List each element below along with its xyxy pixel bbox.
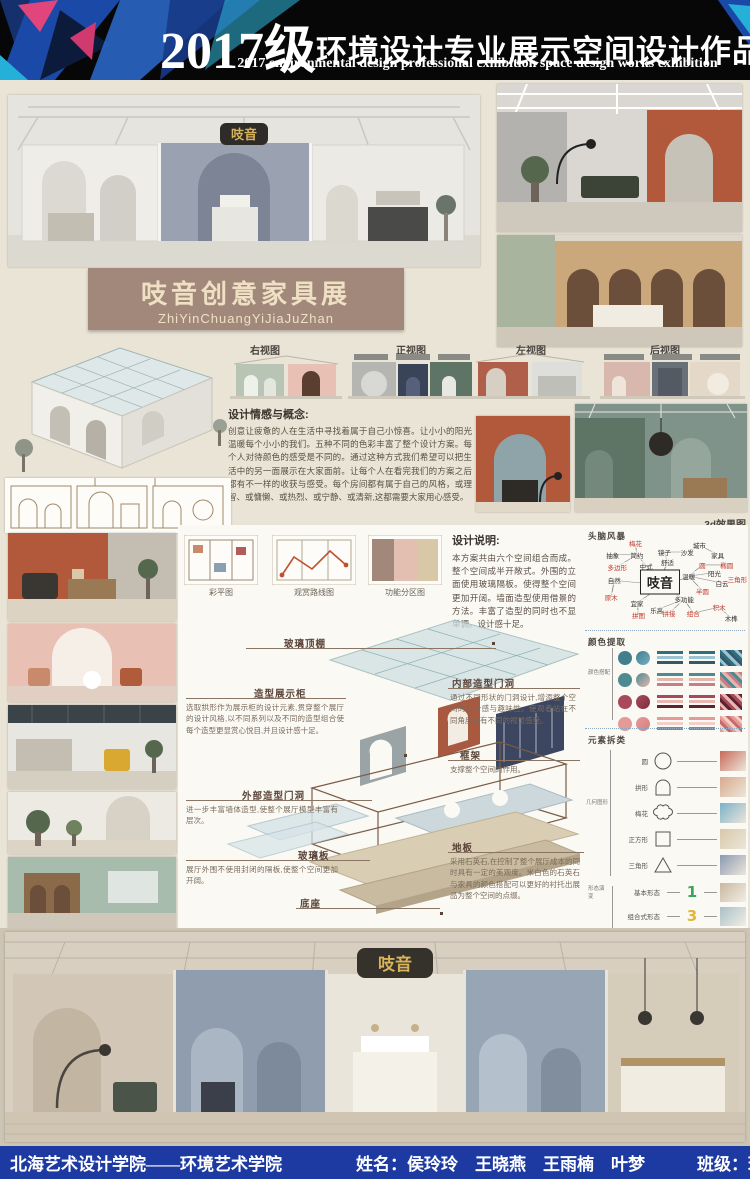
mindmap-node: 拼接 (662, 608, 675, 618)
form-connector (704, 916, 717, 917)
elements-divider (585, 728, 745, 729)
palette-rows (618, 648, 746, 736)
exhibition-banner: 吱音创意家具展 ZhiYinChuangYiJiaJuZhan (88, 268, 404, 330)
main-elevation-render: 吱音 (8, 95, 480, 267)
mood-render-4 (8, 792, 176, 854)
color-stripe-set (657, 651, 683, 664)
element-shape-row: 正方形 (614, 826, 746, 852)
footer-school: 北海艺术设计学院——环境艺术学院 (10, 1150, 282, 1175)
page-subtitle-en: 2017 environmental design professional e… (205, 56, 750, 72)
mindmap-node: 城市 (693, 540, 706, 550)
interior-render-3b (575, 404, 747, 512)
palette-heading: 颜色提取 (588, 636, 626, 648)
element-connector (677, 761, 717, 762)
color-swatch-circle (618, 695, 632, 709)
footer-names: 侯玲玲 王晓燕 王雨楠 叶梦 (407, 1150, 645, 1175)
forms-label: 形态演变 (588, 884, 608, 900)
footer-bar: 北海艺术设计学院——环境艺术学院 姓名： 侯玲玲 王晓燕 王雨楠 叶梦 班级： … (0, 1146, 750, 1179)
element-photo-thumb (720, 777, 746, 797)
leader-frame (448, 760, 580, 761)
mindmap-node: 拼图 (632, 610, 645, 620)
square-shape-icon (652, 829, 674, 849)
mindmap-node: 积木 (713, 602, 726, 612)
color-swatch-circle (636, 695, 650, 709)
mindmap-node: 舒适 (661, 557, 674, 567)
svg-text:吱音: 吱音 (378, 954, 412, 974)
mindmap-node: 镜子 (658, 547, 671, 557)
mindmap-node: 抽象 (606, 550, 619, 560)
palette-bracket (612, 648, 617, 720)
footer-names-label: 姓名： (356, 1150, 407, 1175)
footer-class-label: 班级： (697, 1150, 748, 1175)
leader-glass-roof (246, 648, 496, 649)
palette-connector-label: 颜色搭配 (588, 668, 610, 676)
palette-row (618, 692, 746, 711)
element-shape-label: 圆 (614, 756, 648, 766)
pattern-thumbnail (720, 694, 742, 710)
leader-display-cabinet (186, 698, 346, 699)
mood-render-5 (8, 857, 176, 929)
desc-inner-arch: 通过不同形状的门洞设计,增添整个空间的设计感与趣味性。使观者站在不同角度会有不同… (450, 692, 576, 726)
mindmap-node: 沙发 (681, 547, 694, 557)
interior-render-1 (497, 84, 742, 232)
form-glyph: 1 (683, 883, 701, 901)
mindmap-node: 简约 (631, 550, 644, 560)
mood-render-2 (8, 624, 176, 702)
mindmap-node: 梅花 (629, 538, 642, 548)
svg-text:吱音: 吱音 (231, 127, 257, 142)
form-label: 基本形态 (616, 887, 660, 897)
element-photo-thumb (720, 803, 746, 823)
circle-shape-icon (652, 751, 674, 771)
triangle-shape-icon (652, 855, 674, 875)
form-row: 组合式形态3 (616, 904, 746, 928)
form-label: 组合式形态 (616, 911, 660, 921)
mindmap-node: 多功能 (674, 594, 694, 604)
element-connector (677, 865, 717, 866)
element-photo-thumb (720, 855, 746, 875)
plan-color-label: 彩平图 (184, 587, 258, 598)
leader-inner-arch (448, 688, 580, 689)
axonometric-render (2, 330, 228, 480)
mindmap-node: 温暖 (682, 571, 695, 581)
mood-render-1 (8, 533, 176, 621)
pattern-thumbnail (720, 672, 742, 688)
flower-shape-icon (652, 803, 674, 823)
element-shape-rows: 圆拱形梅花正方形三角形 (614, 748, 746, 878)
pattern-thumbnail (720, 716, 742, 732)
banner-pinyin: ZhiYinChuangYiJiaJuZhan (88, 311, 404, 326)
leader-glass-panel (186, 860, 370, 861)
concept-section: 设计情感与概念: 创意让疲惫的人在生活中寻找着属于自己小惊喜。让小小的阳光温暖每… (228, 406, 472, 504)
leader-base (296, 908, 440, 909)
concept-body: 创意让疲惫的人在生活中寻找着属于自己小惊喜。让小小的阳光温暖每个小小的我们。五种… (228, 425, 472, 504)
concept-heading: 设计情感与概念: (228, 406, 472, 422)
design-note-heading: 设计说明: (452, 532, 576, 548)
mindmap-node: 组合 (687, 608, 700, 618)
color-stripe-set (657, 673, 683, 686)
desc-frame: 支撑整个空间的作用。 (450, 764, 576, 775)
mindmap-node: 宜家 (631, 598, 644, 608)
element-shape-row: 梅花 (614, 800, 746, 826)
elevation-right-thumb (230, 354, 342, 400)
mindmap-node: 半圆 (696, 586, 709, 596)
elevation-front-thumb (348, 352, 476, 400)
plan-zoning-label: 功能分区图 (368, 587, 442, 598)
mindmap-node: 木榫 (725, 613, 738, 623)
element-photo-thumb (720, 751, 746, 771)
color-swatch-circle (618, 651, 632, 665)
desc-display-cabinet: 选取拱形作为展示柜的设计元素,贯穿整个展厅的设计风格,以不同系列以及不同的造型组… (186, 702, 344, 736)
elevation-left-thumb (470, 352, 590, 400)
form-connector (704, 892, 717, 893)
elements-group-label: 几何图形 (586, 798, 608, 806)
mindmap-node: 自然 (608, 575, 621, 585)
element-connector (677, 839, 717, 840)
form-photo-thumb (720, 883, 746, 902)
element-photo-thumb (720, 829, 746, 849)
element-shape-row: 拱形 (614, 774, 746, 800)
element-shape-row: 三角形 (614, 852, 746, 878)
palette-row (618, 714, 746, 733)
plan-color: 彩平图 (184, 535, 258, 598)
mindmap-node: 椭圆 (720, 560, 733, 570)
mood-render-3 (8, 705, 176, 789)
mindmap-center-node: 吱音 (640, 570, 680, 595)
elements-heading: 元素拆类 (588, 734, 626, 746)
palette-divider (585, 630, 745, 631)
elevation-back-thumb (600, 352, 745, 400)
element-shape-label: 三角形 (614, 860, 648, 870)
desc-floor: 采用石英石,在控制了整个展厅成本的同时具有一定的美观度。米白色的石英石与家具的颜… (450, 856, 580, 901)
mindmap-node: 家具 (711, 550, 724, 560)
interior-render-3a (476, 416, 570, 512)
brainstorm-mindmap: 梅花城市抽象简约镜子沙发家具多边形中式舒适圆椭圆温暖阳光自然白云三角形半圆原木宜… (596, 540, 748, 626)
element-shape-row: 圆 (614, 748, 746, 774)
desc-glass-panel: 展厅外围不使用封闭的隔板,使整个空间更加开阔。 (186, 864, 338, 887)
form-connector (667, 916, 680, 917)
pattern-thumbnail (720, 650, 742, 666)
desc-outer-arch: 进一步丰富墙体造型,使整个展厅模型丰富有层次。 (186, 804, 338, 827)
palette-row (618, 648, 746, 667)
plan-zoning: 功能分区图 (368, 535, 442, 598)
mindmap-node: 乐高 (650, 605, 663, 615)
leader-floor (448, 852, 584, 853)
interior-render-2 (497, 235, 742, 347)
element-shape-label: 正方形 (614, 834, 648, 844)
form-glyph: 3 (683, 907, 701, 925)
mindmap-node: 原木 (605, 592, 618, 602)
header-band: 2017级环境设计专业展示空间设计作品展 2017 environmental … (0, 0, 750, 80)
form-photo-thumb (720, 907, 746, 926)
banner-title: 吱音创意家具展 (88, 274, 404, 311)
mindmap-node: 圆 (699, 560, 706, 570)
arch-shape-icon (652, 777, 674, 797)
palette-row (618, 670, 746, 689)
color-stripe-set (689, 673, 715, 686)
poster-board: 2017级环境设计专业展示空间设计作品展 2017 environmental … (0, 0, 750, 1179)
form-row: 基本形态1 (616, 880, 746, 904)
color-stripe-set (689, 651, 715, 664)
mindmap-node: 三角形 (728, 574, 748, 584)
element-connector (677, 787, 717, 788)
mindmap-node: 多边形 (608, 562, 628, 572)
final-render: 吱音 (5, 932, 745, 1142)
plan-route-label: 观赏路线图 (272, 587, 356, 598)
color-swatch-circle (636, 651, 650, 665)
color-swatch-circle (618, 673, 632, 687)
element-shape-label: 拱形 (614, 782, 648, 792)
color-stripe-set (657, 695, 683, 708)
mindmap-node: 阳光 (708, 568, 721, 578)
element-shape-label: 梅花 (614, 808, 648, 818)
element-connector (677, 813, 717, 814)
leader-outer-arch (186, 800, 372, 801)
color-swatch-circle (636, 673, 650, 687)
plan-route: 观赏路线图 (272, 535, 356, 598)
form-connector (667, 892, 680, 893)
color-stripe-set (689, 695, 715, 708)
